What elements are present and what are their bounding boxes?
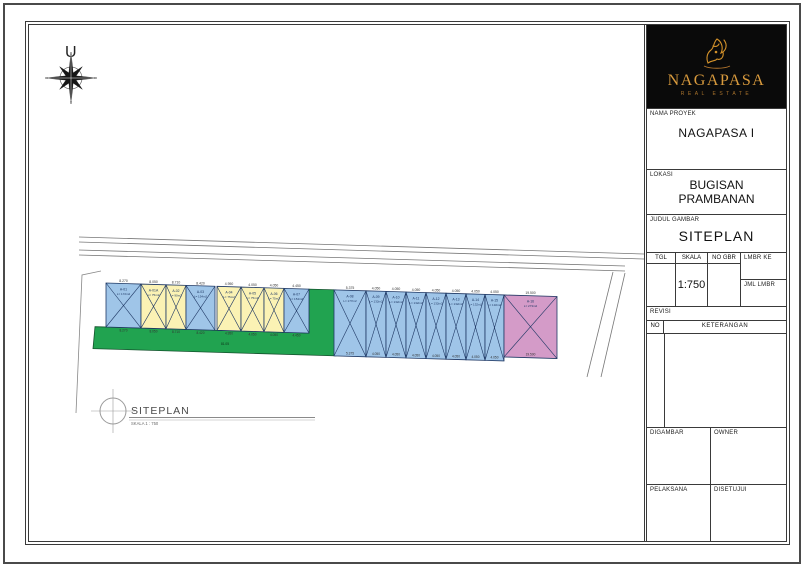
judul-gambar-label: JUDUL GAMBAR (647, 215, 786, 223)
lot-text: L= 75m2 (223, 295, 235, 299)
lot-text: 4.050 (471, 290, 480, 294)
lot-text: A-06 (270, 292, 277, 296)
lokasi-line1: BUGISAN (647, 179, 786, 193)
plan-scale-note: SKALA 1 : 750 (131, 421, 159, 426)
brand-tagline: REAL ESTATE (681, 91, 752, 97)
lot-text: L= 132m2 (488, 303, 502, 307)
lot-text: 4.050 (270, 333, 278, 337)
lot-text: L= 75m2 (148, 293, 160, 297)
cell-jml-lmbr: JML LMBR (741, 280, 786, 307)
lot-text: 4.050 (248, 283, 257, 287)
lot-text: 8.050 (149, 280, 158, 284)
lot-text: L= 90m2 (170, 294, 182, 298)
lot-text: A-04 (225, 291, 232, 295)
judul-gambar-value: SITEPLAN (647, 228, 786, 244)
lot-text: 4.450 (293, 334, 301, 338)
lmbr-ke-label: LMBR KE (741, 253, 786, 261)
skala-value: 1:750 (676, 264, 707, 306)
lot-text: 19.500 (526, 353, 536, 357)
lot-text: L= 132m2 (369, 300, 383, 304)
lot-text: L= 132m2 (389, 300, 403, 304)
lokasi-line2: PRAMBANAN (647, 193, 786, 207)
lot-text: L= 132m2 (429, 301, 443, 305)
plan-title: SITEPLAN (131, 405, 190, 417)
cell-lmbr: LMBR KE JML LMBR (741, 253, 786, 306)
lot-text: A-05 (249, 291, 256, 295)
lot-text: 8.420 (196, 281, 205, 285)
compass-rose: U (45, 44, 97, 104)
lot-text: 8.270 (120, 329, 128, 333)
lot-text: 4.050 (432, 288, 441, 292)
lot-text: L= 75m2 (268, 297, 280, 301)
cell-digambar: DIGAMBAR (647, 428, 711, 484)
lot-text: A-12 (432, 297, 439, 301)
lot-text: A-09 (372, 295, 379, 299)
lokasi-label: LOKASI (647, 170, 786, 178)
lot-text: 8.420 (197, 331, 205, 335)
lot-text: L= 132m2 (409, 301, 423, 305)
lot-text: 5.375 (346, 351, 354, 355)
lot-text: 4.950 (225, 332, 233, 336)
logo-box: NAGAPASA REAL ESTATE (647, 25, 786, 109)
lot-text: L= 172m2 (117, 292, 131, 296)
disetujui-label: DISETUJUI (711, 485, 786, 493)
lot-text: A-13 (452, 298, 459, 302)
section-revisi: REVISI (647, 307, 786, 321)
cell-lmbr-ke: LMBR KE (741, 253, 786, 280)
lot-text: L= 177m2 (343, 299, 357, 303)
road-line (79, 255, 625, 271)
lot-text: 4.050 (452, 355, 460, 359)
section-judul-gambar: JUDUL GAMBAR SITEPLAN (647, 215, 786, 253)
drawing-sheet: { "sheet": { "north_label": "U" }, "plan… (0, 0, 804, 567)
lot-text: A-16 (527, 300, 534, 304)
lot-text: A-01 (120, 288, 127, 292)
lot-text: 4.050 (452, 289, 461, 293)
lot-text: 8.710 (172, 281, 181, 285)
lot-text: L= 132m2 (469, 303, 483, 307)
lot-text: 5.375 (346, 286, 355, 290)
brand-name: NAGAPASA (668, 73, 766, 89)
keterangan-label: KETERANGAN (664, 321, 786, 333)
drawing-area: U 81.05 A (28, 24, 787, 542)
lot-text: 4.050 (491, 356, 499, 360)
section-nama-proyek: NAMA PROYEK NAGAPASA I (647, 109, 786, 170)
tgl-value (647, 264, 675, 306)
lot-text: L= 273m2 (524, 304, 538, 308)
section-digambar-owner: DIGAMBAR OWNER (647, 428, 786, 485)
jml-lmbr-label: JML LMBR (741, 280, 786, 288)
green-road-dim: 81.05 (221, 342, 229, 346)
lot-text: 4.050 (490, 290, 499, 294)
section-pelaksana-disetujui: PELAKSANA DISETUJUI (647, 485, 786, 541)
plan-title-group: SITEPLAN SKALA 1 : 750 (91, 389, 315, 433)
lot-text: A-02 (172, 289, 179, 293)
siteplan-svg: U 81.05 A (29, 25, 647, 541)
digambar-label: DIGAMBAR (647, 428, 710, 436)
lokasi-value: BUGISAN PRAMBANAN (647, 179, 786, 207)
lot-text: 4.050 (412, 353, 420, 357)
nama-proyek-label: NAMA PROYEK (647, 109, 786, 117)
lot-text: 4.050 (412, 288, 421, 292)
road-line (79, 237, 644, 254)
lot-text: A-10 (392, 296, 399, 300)
owner-label: OWNER (711, 428, 786, 436)
section-scale: TGL SKALA 1:750 NO GBR LMBR KE JML LM (647, 253, 786, 307)
revisi-label: REVISI (647, 307, 786, 315)
lot-text: 4.050 (270, 284, 279, 288)
lot-text: 4.950 (225, 282, 234, 286)
revisi-table-header: NO KETERANGAN (647, 321, 786, 334)
lot-text: 19.500 (525, 291, 535, 295)
lot-text: 8.710 (172, 330, 180, 334)
road-line (601, 273, 625, 377)
lot-text: A-03 (197, 290, 204, 294)
no-label: NO (647, 321, 664, 333)
lot-text: A-08 (346, 294, 353, 298)
cell-disetujui: DISETUJUI (711, 485, 786, 541)
pelaksana-label: PELAKSANA (647, 485, 710, 493)
road-line (587, 272, 613, 377)
cell-no-gbr: NO GBR (708, 253, 741, 306)
lot-text: L= 154m2 (194, 294, 208, 298)
section-lokasi: LOKASI BUGISAN PRAMBANAN (647, 170, 786, 215)
lot-text: A-07 (293, 293, 300, 297)
revisi-table-body (647, 334, 786, 428)
horse-emblem-icon (696, 36, 738, 72)
lot-text: L= 75m2 (247, 296, 259, 300)
lot-text: 4.050 (372, 352, 380, 356)
lot-text: A-15 (491, 299, 498, 303)
nama-proyek-value: NAGAPASA I (647, 126, 786, 140)
no-gbr-value (708, 264, 740, 306)
revisi-no-column (647, 334, 665, 427)
lot-text: A-14 (472, 298, 479, 302)
road-line (79, 242, 644, 259)
tgl-label: TGL (647, 253, 675, 264)
sheet-inner-border: U 81.05 A (25, 21, 790, 545)
lot-text: A-11 (413, 296, 420, 300)
cell-pelaksana: PELAKSANA (647, 485, 711, 541)
lot-text: 4.050 (392, 287, 401, 291)
lot-text: 4.050 (432, 354, 440, 358)
cell-tgl: TGL (647, 253, 676, 306)
no-gbr-label: NO GBR (708, 253, 740, 264)
road-top (79, 237, 644, 271)
lot-text: 8.270 (119, 279, 128, 283)
road-right (587, 272, 625, 377)
skala-label: SKALA (676, 253, 707, 264)
road-line (79, 250, 625, 266)
lot-text: 4.050 (372, 287, 381, 291)
lot-text: 8.050 (150, 329, 158, 333)
lot-text: 4.050 (472, 355, 480, 359)
lot-text: 4.050 (249, 332, 257, 336)
cell-owner: OWNER (711, 428, 786, 484)
cell-skala: SKALA 1:750 (676, 253, 708, 306)
lot-text: 4.050 (392, 353, 400, 357)
lot-text: 4.450 (292, 284, 301, 288)
title-block: NAGAPASA REAL ESTATE NAMA PROYEK NAGAPAS… (644, 25, 786, 541)
lot-text: A-01A (149, 288, 159, 292)
lot-text: L= 154m2 (290, 297, 304, 301)
lot-text: L= 132m2 (449, 302, 463, 306)
